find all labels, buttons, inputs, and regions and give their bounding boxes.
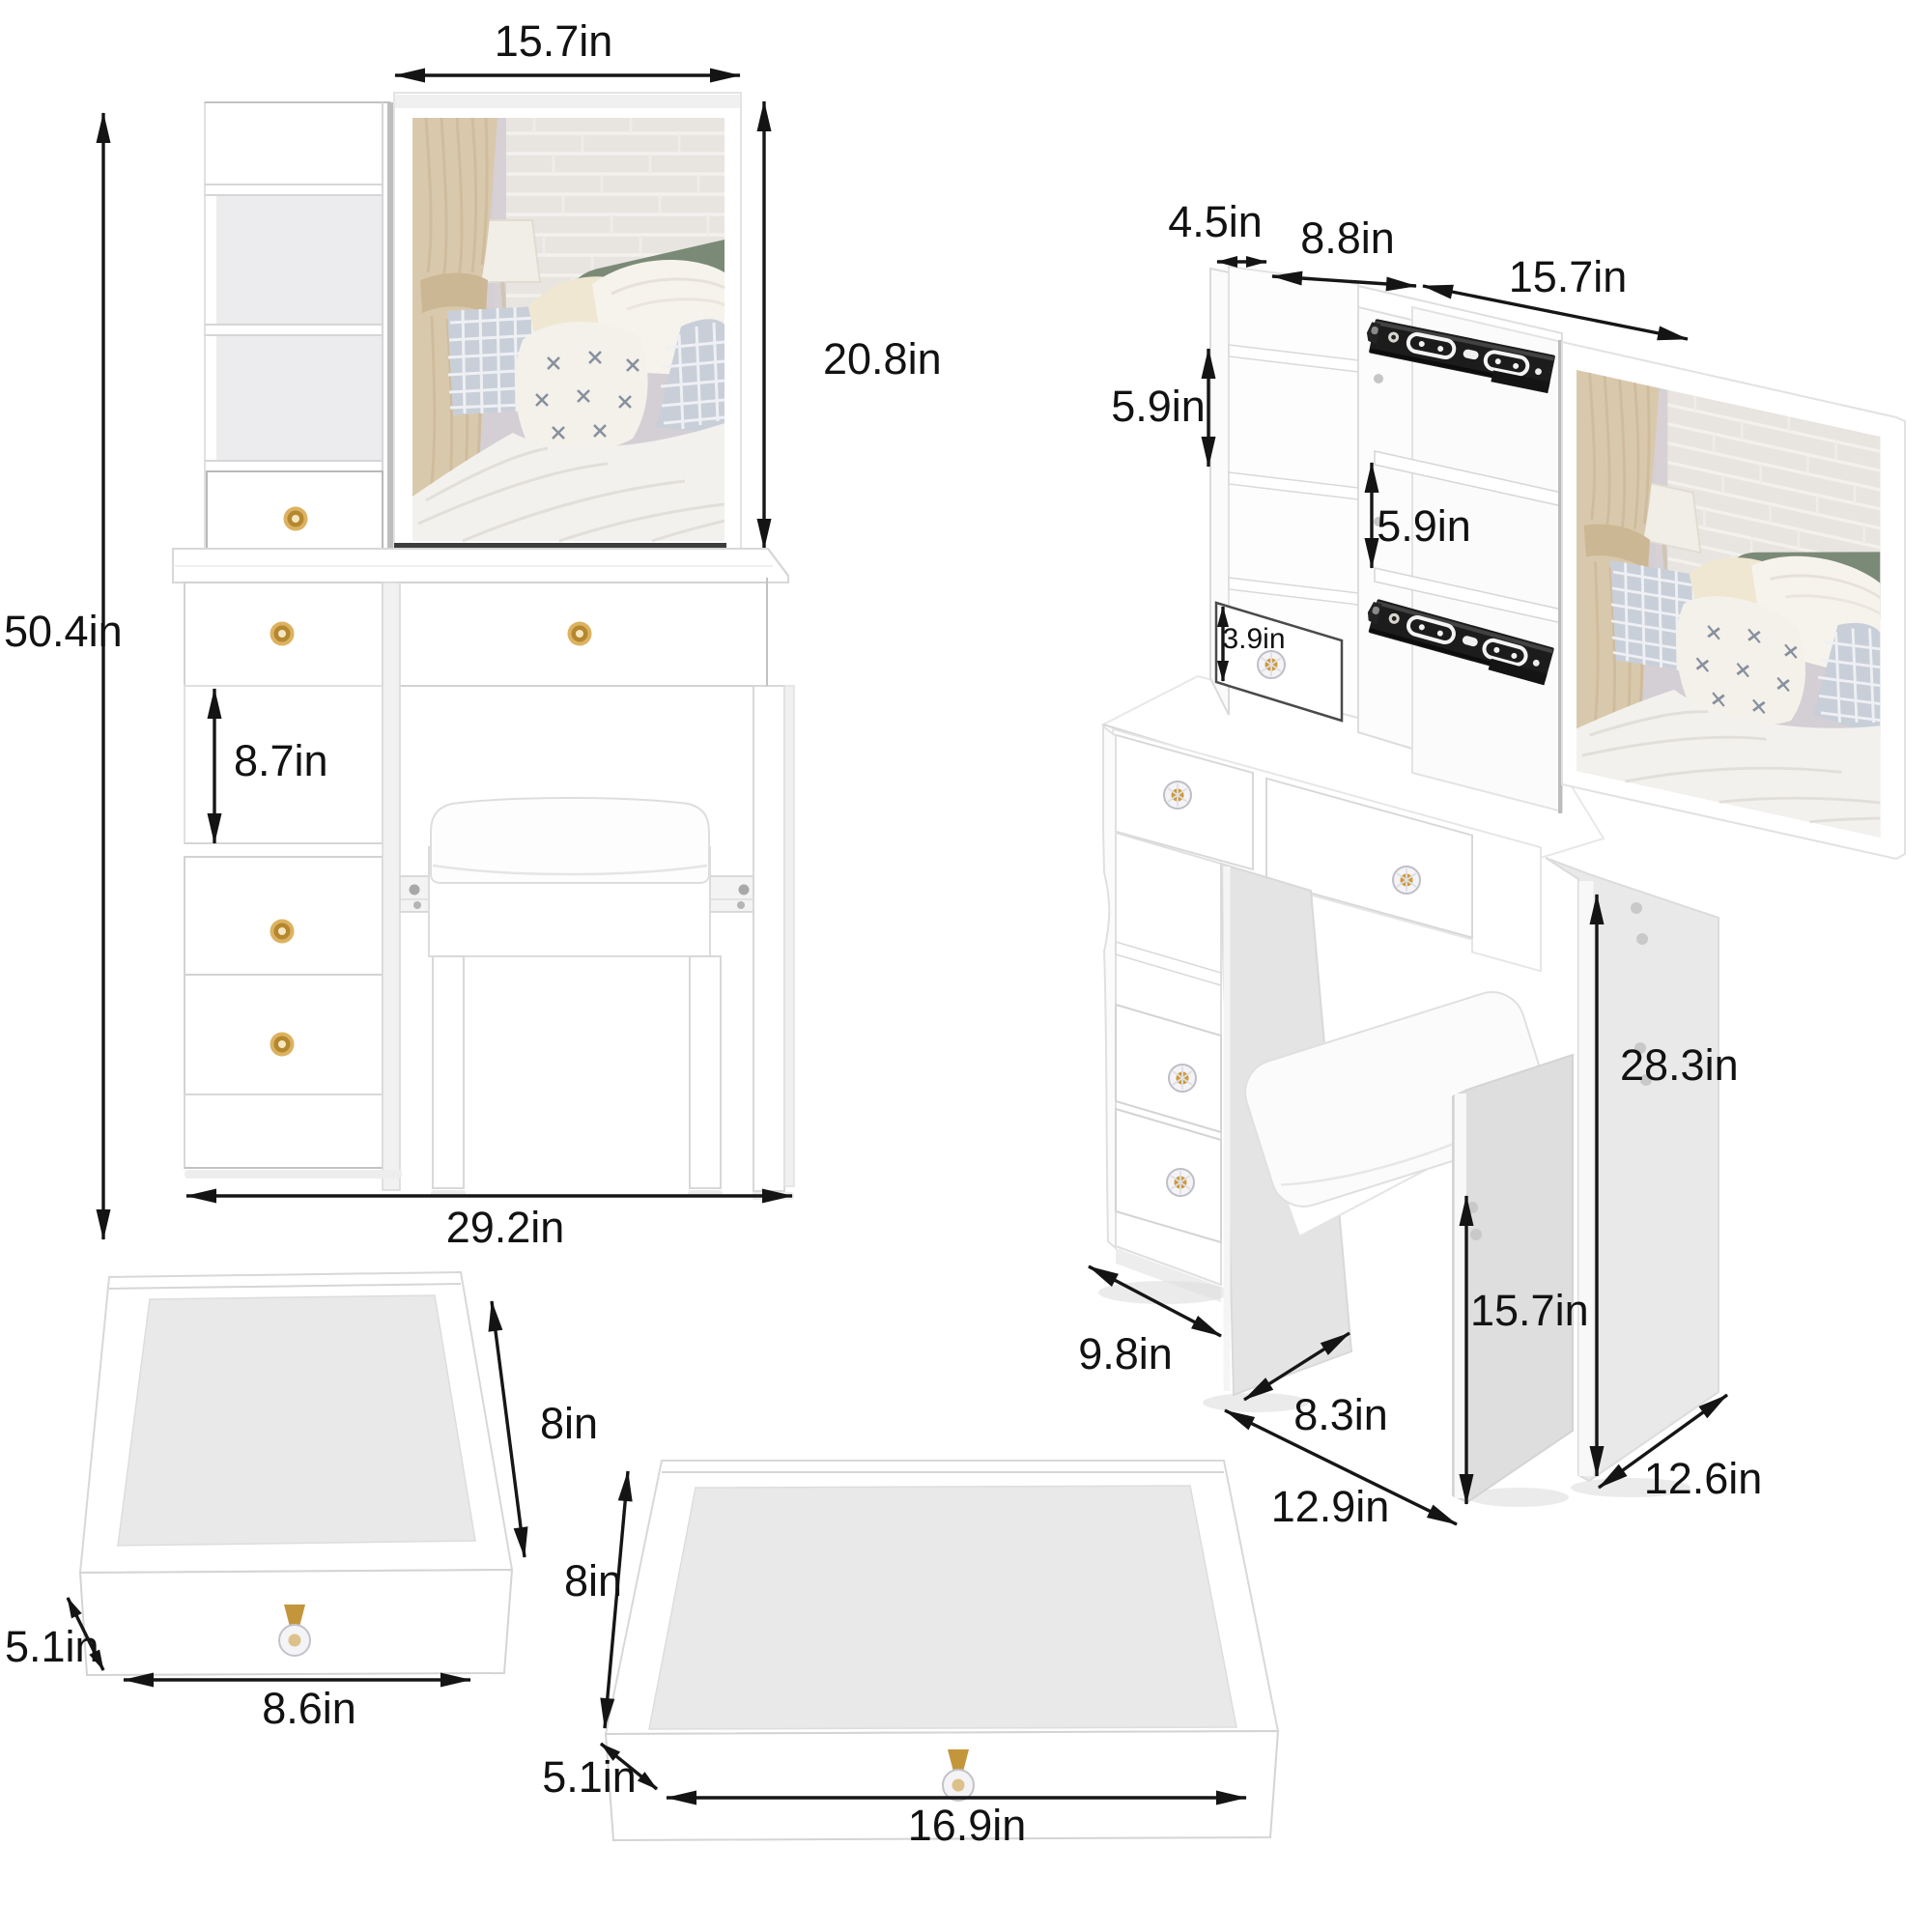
svg-text:12.9in: 12.9in [1271,1482,1390,1531]
svg-text:50.4in: 50.4in [4,607,123,656]
svg-text:16.9in: 16.9in [908,1801,1027,1850]
svg-text:15.7in: 15.7in [1509,252,1628,301]
svg-text:8in: 8in [540,1399,598,1448]
svg-text:8.8in: 8.8in [1300,213,1395,263]
svg-text:8.6in: 8.6in [262,1684,356,1733]
svg-text:15.7in: 15.7in [495,16,613,66]
svg-text:29.2in: 29.2in [446,1203,565,1252]
svg-text:9.8in: 9.8in [1078,1329,1173,1378]
svg-text:15.7in: 15.7in [1470,1286,1589,1335]
svg-text:20.8in: 20.8in [823,334,942,384]
svg-text:8.3in: 8.3in [1293,1390,1388,1439]
svg-text:5.9in: 5.9in [1377,501,1471,551]
svg-text:5.1in: 5.1in [542,1752,637,1802]
svg-text:4.5in: 4.5in [1168,197,1263,246]
svg-text:3.9in: 3.9in [1222,623,1285,655]
svg-text:28.3in: 28.3in [1620,1040,1739,1090]
svg-text:8in: 8in [564,1556,622,1605]
svg-text:5.1in: 5.1in [5,1622,99,1671]
svg-text:5.9in: 5.9in [1111,382,1206,431]
svg-text:12.6in: 12.6in [1644,1454,1763,1503]
svg-text:8.7in: 8.7in [234,736,328,785]
